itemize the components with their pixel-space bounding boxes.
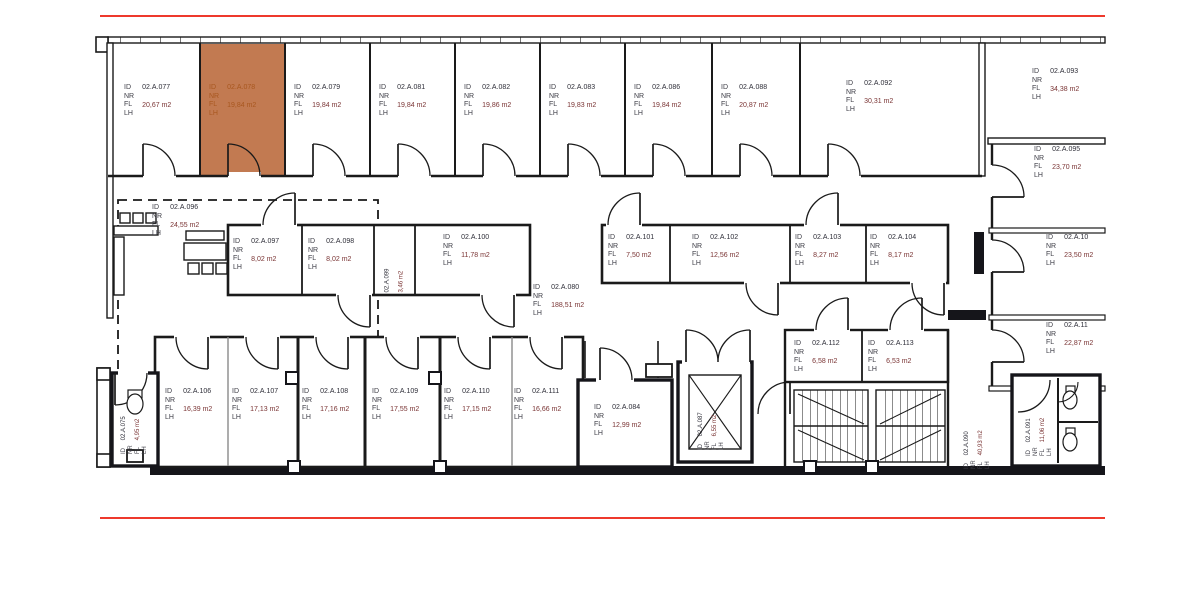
room-label-02a087-elevator[interactable]: ID NR FL LH 02.A.0876,55 m2 [698,378,726,450]
room-area: 12,99 m2 [612,422,641,431]
room-area: 19,84 m2 [397,102,426,111]
room-area: 3,46 m2 [399,268,406,292]
room-id: 02.A.078 [227,84,256,93]
room-label-02a11x[interactable]: ID NR FL LH 02.A.1122,87 m2 [1046,322,1093,356]
field-keys: ID NR FL LH [721,84,731,118]
room-label-02a078[interactable]: ID NR FL LH 02.A.07819,84 m2 [209,84,256,118]
room-area: 19,84 m2 [652,102,681,111]
room-id: 02.A.092 [864,80,893,89]
field-keys: ID NR FL LH [795,234,805,268]
room-id: 02.A.108 [320,388,349,397]
room-area: 20,87 m2 [739,102,768,111]
room-id: 02.A.082 [482,84,511,93]
field-keys: ID NR FL LH [698,441,726,450]
field-keys: ID NR FL LH [379,84,389,118]
room-id: 02.A.110 [462,388,491,397]
room-area: 188,51 m2 [551,302,584,311]
room-id: 02.A.095 [1052,146,1081,155]
field-keys: ID NR FL LH [964,460,992,469]
room-area: 8,17 m2 [888,252,916,261]
field-keys: ID NR FL LH [1046,234,1056,268]
room-area: 17,16 m2 [320,406,349,415]
room-id: 02.A.11 [1064,322,1093,331]
field-keys: ID NR FL LH [302,388,312,422]
field-keys: ID NR FL LH [794,340,804,374]
room-id: 02.A.080 [551,284,584,293]
field-keys: ID NR FL LH [372,388,382,422]
room-id: 02.A.107 [250,388,279,397]
field-keys: ID NR FL LH [692,234,702,268]
room-label-02a102[interactable]: ID NR FL LH 02.A.10212,56 m2 [692,234,739,268]
field-keys: ID NR FL LH [232,388,242,422]
room-id: 02.A.086 [652,84,681,93]
room-area: 19,84 m2 [312,102,341,111]
room-area: 16,66 m2 [532,406,561,415]
field-keys: ID NR FL LH [868,340,878,374]
room-label-02a092[interactable]: ID NR FL LH 02.A.09230,31 m2 [846,80,893,114]
room-label-02a103[interactable]: ID NR FL LH 02.A.1038,27 m2 [795,234,841,268]
floor-plan: ID NR FL LH 02.A.07720,67 m2 ID NR FL LH… [0,0,1106,600]
room-id: 02.A.109 [390,388,419,397]
room-label-02a110[interactable]: ID NR FL LH 02.A.11017,15 m2 [444,388,491,422]
field-keys: ID NR FL LH [464,84,474,118]
room-id: 02.A.103 [813,234,841,243]
field-keys: ID NR FL LH [608,234,618,268]
room-label-02a104[interactable]: ID NR FL LH 02.A.1048,17 m2 [870,234,916,268]
field-keys: ID NR FL LH [165,388,175,422]
room-label-02a109[interactable]: ID NR FL LH 02.A.10917,55 m2 [372,388,419,422]
room-label-02a108[interactable]: ID NR FL LH 02.A.10817,16 m2 [302,388,349,422]
room-area: 30,31 m2 [864,98,893,107]
room-id: 02.A.079 [312,84,341,93]
field-keys: ID NR FL LH [124,84,134,118]
room-label-02a081[interactable]: ID NR FL LH 02.A.08119,84 m2 [379,84,426,118]
room-label-02a075-wc[interactable]: ID NR FL LH 02.A.0754,95 m2 [121,398,149,454]
field-keys: ID NR FL LH [846,80,856,114]
room-area: 17,15 m2 [462,406,491,415]
field-keys: ID NR FL LH [121,445,149,454]
room-label-02a106[interactable]: ID NR FL LH 02.A.10616,39 m2 [165,388,212,422]
room-id: 02.A.104 [888,234,916,243]
room-area: 17,55 m2 [390,406,419,415]
room-id: 02.A.097 [251,238,279,247]
room-label-02a086[interactable]: ID NR FL LH 02.A.08619,84 m2 [634,84,681,118]
room-label-02a091-wc[interactable]: ID NR FL LH 02.A.09111,06 m2 [1026,392,1054,456]
field-keys: ID NR FL LH [870,234,880,268]
room-id: 02.A.088 [739,84,768,93]
field-keys: ID NR FL LH [594,404,604,438]
room-id: 02.A.096 [170,204,199,213]
field-keys: ID NR FL LH [1034,146,1044,180]
room-label-02a093[interactable]: ID NR FL LH 02.A.09334,38 m2 [1032,68,1079,102]
room-area: 19,86 m2 [482,102,511,111]
room-label-02a107[interactable]: ID NR FL LH 02.A.10717,13 m2 [232,388,279,422]
room-area: 24,55 m2 [170,222,199,231]
field-keys: ID NR FL LH [1026,447,1054,456]
room-area: 8,27 m2 [813,252,841,261]
room-area: 6,58 m2 [812,358,840,367]
room-area: 19,83 m2 [567,102,596,111]
room-area: 6,55 m2 [712,412,719,436]
room-id: 02.A.091 [1026,418,1033,443]
field-keys: ID NR FL LH [1032,68,1042,102]
room-id: 02.A.084 [612,404,641,413]
room-label-02a097[interactable]: ID NR FL LH 02.A.0978,02 m2 [233,238,279,272]
room-area: 20,67 m2 [142,102,171,111]
room-area: 8,02 m2 [326,256,354,265]
room-area: 17,13 m2 [250,406,279,415]
room-id: 02.A.077 [142,84,171,93]
field-keys: ID NR FL LH [152,204,162,238]
room-area: 16,39 m2 [183,406,212,415]
room-area: 8,02 m2 [251,256,279,265]
room-area: 34,38 m2 [1050,86,1079,95]
room-area: 23,70 m2 [1052,164,1081,173]
room-id: 02.A.098 [326,238,354,247]
room-id: 02.A.111 [532,388,561,397]
room-id: 02.A.102 [710,234,739,243]
room-id: 02.A.106 [183,388,212,397]
field-keys: ID NR FL LH [549,84,559,118]
room-label-02a088[interactable]: ID NR FL LH 02.A.08820,87 m2 [721,84,768,118]
room-id: 02.A.093 [1050,68,1079,77]
room-label-02a090-stairs[interactable]: ID NR FL LH 02.A.09040,93 m2 [964,391,992,469]
room-area: 40,93 m2 [978,430,985,455]
field-keys: ID NR FL LH [514,388,524,422]
room-id: 02.A.100 [461,234,490,243]
room-id: 02.A.099 [385,268,392,292]
room-id: 02.A.10 [1064,234,1093,243]
room-label-02a111[interactable]: ID NR FL LH 02.A.11116,66 m2 [514,388,561,422]
field-keys: ID NR FL LH [634,84,644,118]
room-label-02a077[interactable]: ID NR FL LH 02.A.07720,67 m2 [124,84,171,118]
room-id: 02.A.113 [886,340,914,349]
room-area: 6,53 m2 [886,358,914,367]
field-keys: ID NR FL LH [209,84,219,118]
room-id: 02.A.075 [121,416,128,440]
room-id: 02.A.083 [567,84,596,93]
field-keys: ID NR FL LH [308,238,318,272]
room-area: 19,84 m2 [227,102,256,111]
room-area: 22,87 m2 [1064,340,1093,349]
field-keys: ID NR FL LH [1046,322,1056,356]
room-label-02a100[interactable]: ID NR FL LH 02.A.10011,78 m2 [443,234,490,268]
field-keys: ID NR FL LH [443,234,453,268]
room-area: 11,06 m2 [1040,418,1047,443]
room-area: 12,56 m2 [710,252,739,261]
room-id: 02.A.090 [964,430,971,455]
room-label-02a083[interactable]: ID NR FL LH 02.A.08319,83 m2 [549,84,596,118]
room-label-02a112[interactable]: ID NR FL LH 02.A.1126,58 m2 [794,340,840,374]
room-area: 11,78 m2 [461,252,490,261]
field-keys: ID NR FL LH [444,388,454,422]
room-label-02a105[interactable]: ID NR FL LH 02.A.1023,50 m2 [1046,234,1093,268]
floor-plan-viewer: ID NR FL LH 02.A.07720,67 m2 ID NR FL LH… [0,0,1200,600]
room-id: 02.A.112 [812,340,840,349]
room-id: 02.A.101 [626,234,654,243]
room-id: 02.A.087 [698,412,705,436]
room-id: 02.A.081 [397,84,426,93]
room-label-02a095[interactable]: ID NR FL LH 02.A.09523,70 m2 [1034,146,1081,180]
field-keys: ID NR FL LH [294,84,304,118]
field-keys: ID NR FL LH [533,284,543,318]
field-keys: ID NR FL LH [233,238,243,272]
room-label-02a098[interactable]: ID NR FL LH 02.A.0988,02 m2 [308,238,354,272]
room-area: 23,50 m2 [1064,252,1093,261]
room-label-02a079[interactable]: ID NR FL LH 02.A.07919,84 m2 [294,84,341,118]
room-label-02a080-corridor[interactable]: ID NR FL LH 02.A.080188,51 m2 [533,284,584,318]
room-label-02a084[interactable]: ID NR FL LH 02.A.08412,99 m2 [594,404,641,438]
room-area: 4,95 m2 [135,416,142,440]
room-label-02a099[interactable]: 02.A.0993,46 m2 [385,229,406,293]
room-label-02a096[interactable]: ID NR FL LH 02.A.09624,55 m2 [152,204,199,238]
room-label-02a101[interactable]: ID NR FL LH 02.A.1017,50 m2 [608,234,654,268]
room-label-02a113[interactable]: ID NR FL LH 02.A.1136,53 m2 [868,340,914,374]
room-label-02a082[interactable]: ID NR FL LH 02.A.08219,86 m2 [464,84,511,118]
room-area: 7,50 m2 [626,252,654,261]
